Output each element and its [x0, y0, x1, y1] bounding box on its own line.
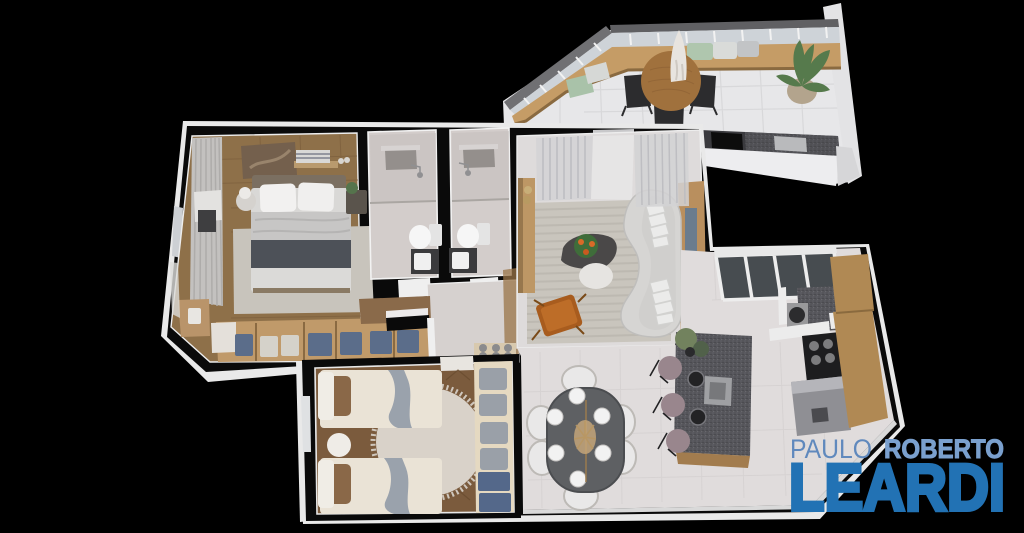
svg-text:LEARDI: LEARDI — [789, 450, 1005, 524]
